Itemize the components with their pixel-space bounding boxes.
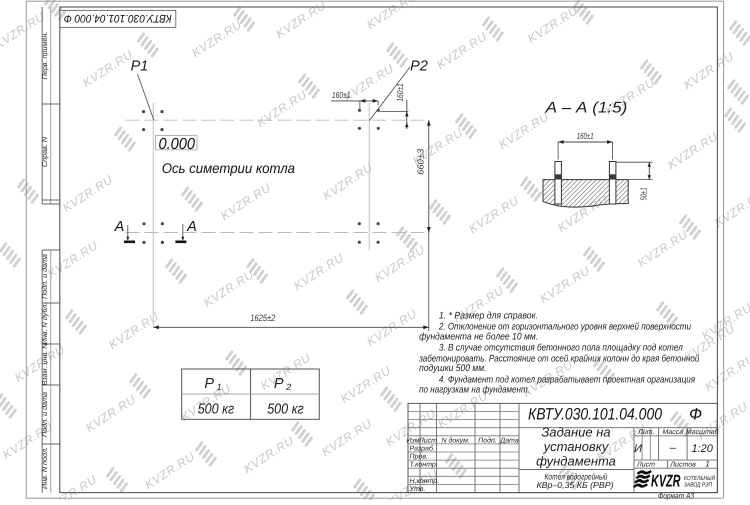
svg-text:160±1: 160±1 <box>332 90 351 100</box>
svg-text:P 1: P 1 <box>204 376 221 392</box>
svg-text:KVZR.RU: KVZR.RU <box>254 87 309 130</box>
svg-text:КВТУ.030.101.04.000 Ф: КВТУ.030.101.04.000 Ф <box>64 12 172 24</box>
svg-text:КОТЕЛЬНЫЙ: КОТЕЛЬНЫЙ <box>684 474 716 482</box>
svg-text:KVZR.RU: KVZR.RU <box>434 29 489 72</box>
svg-text:Дата: Дата <box>499 437 519 444</box>
svg-text:Подп. и дата: Подп. и дата <box>40 254 49 299</box>
svg-text:KVZR.RU: KVZR.RU <box>496 109 551 152</box>
svg-text:KVZR.RU: KVZR.RU <box>60 172 115 215</box>
svg-text:KVZR.RU: KVZR.RU <box>241 433 296 476</box>
svg-text:KVZR.RU: KVZR.RU <box>44 472 99 500</box>
svg-text:Т.контр.: Т.контр. <box>410 462 438 469</box>
svg-text:установку: установку <box>543 439 610 454</box>
svg-text:KVZR.RU: KVZR.RU <box>45 238 100 281</box>
svg-text:Лист: Лист <box>418 437 437 444</box>
svg-text:Подп.: Подп. <box>478 436 497 444</box>
svg-text:Ф: Ф <box>689 405 702 423</box>
svg-text:КВр–0,35 КБ (РВР): КВр–0,35 КБ (РВР) <box>537 480 614 490</box>
svg-text:KVZR: KVZR <box>651 471 681 490</box>
svg-text:Взам. инв. N: Взам. инв. N <box>40 343 49 386</box>
svg-text:фундамента: фундамента <box>536 454 616 469</box>
svg-text:KVZR.RU: KVZR.RU <box>189 17 244 60</box>
svg-text:КВТУ.030.101.04.000: КВТУ.030.101.04.000 <box>528 405 663 423</box>
svg-text:KVZR.RU: KVZR.RU <box>537 263 592 306</box>
svg-text:подушки 500 мм.: подушки 500 мм. <box>419 363 486 374</box>
svg-text:А: А <box>186 219 197 235</box>
svg-text:KVZR.RU: KVZR.RU <box>218 180 273 223</box>
svg-text:KVZR.RU: KVZR.RU <box>635 227 690 270</box>
svg-text:P1: P1 <box>131 59 149 75</box>
svg-text:Утв.: Утв. <box>409 486 426 493</box>
svg-text:KVZR.RU: KVZR.RU <box>372 242 427 285</box>
svg-text:500 кг: 500 кг <box>198 402 235 418</box>
svg-text:KVZR.RU: KVZR.RU <box>466 193 521 236</box>
svg-text:160±1: 160±1 <box>577 131 594 141</box>
svg-text:Масса: Масса <box>662 429 683 436</box>
svg-text:KVZR.RU: KVZR.RU <box>525 3 580 46</box>
svg-text:KVZR.RU: KVZR.RU <box>319 416 374 459</box>
svg-text:ЗАВОД РЭП: ЗАВОД РЭП <box>684 482 713 489</box>
svg-text:KVZR.RU: KVZR.RU <box>142 449 197 492</box>
svg-text:по нагрузкам на фундамент.: по нагрузкам на фундамент. <box>419 384 530 395</box>
svg-text:500 кг: 500 кг <box>267 402 304 418</box>
svg-text:P 2: P 2 <box>274 376 291 392</box>
svg-text:KVZR.RU: KVZR.RU <box>702 351 750 394</box>
svg-text:1625±2: 1625±2 <box>250 313 275 323</box>
svg-text:P2: P2 <box>410 59 428 75</box>
svg-text:N докум.: N докум. <box>442 436 470 444</box>
svg-text:Инв. N подл.: Инв. N подл. <box>40 447 49 489</box>
svg-text:KVZR.RU: KVZR.RU <box>201 267 256 310</box>
svg-text:KVZR.RU: KVZR.RU <box>681 49 736 92</box>
svg-text:Разраб.: Разраб. <box>410 445 435 453</box>
svg-text:1: 1 <box>705 460 709 469</box>
svg-text:3. В случае отсутствия бетонн: 3. В случае отсутствия бетонного пола пл… <box>439 343 683 354</box>
svg-text:Инв. N дубл.: Инв. N дубл. <box>40 303 49 345</box>
svg-text:Формат А3: Формат А3 <box>658 492 694 500</box>
svg-text:Лист: Лист <box>636 462 655 469</box>
svg-text:KVZR.RU: KVZR.RU <box>665 129 720 172</box>
svg-text:KVZR.RU: KVZR.RU <box>291 250 346 293</box>
svg-text:Лит.: Лит. <box>637 429 654 436</box>
svg-text:Ось симетрии котла: Ось симетрии котла <box>162 160 295 176</box>
svg-text:0.000: 0.000 <box>159 136 196 153</box>
svg-text:1:20: 1:20 <box>691 443 713 455</box>
svg-text:160±1: 160±1 <box>395 83 405 101</box>
svg-text:А – А (1:5): А – А (1:5) <box>544 99 627 116</box>
svg-text:Масштаб: Масштаб <box>686 428 720 436</box>
svg-text:–: – <box>669 442 677 454</box>
svg-text:Пров.: Пров. <box>410 454 429 461</box>
svg-text:660±3: 660±3 <box>415 149 425 175</box>
svg-text:А: А <box>114 219 125 235</box>
svg-text:50±1: 50±1 <box>638 187 648 200</box>
svg-text:KVZR.RU: KVZR.RU <box>83 392 138 435</box>
svg-text:KVZR.RU: KVZR.RU <box>273 0 328 41</box>
svg-text:Перв. примен.: Перв. примен. <box>40 32 49 80</box>
svg-text:Подп. и дата: Подп. и дата <box>40 392 49 437</box>
svg-text:Листов: Листов <box>669 462 696 469</box>
svg-text:KVZR.RU: KVZR.RU <box>320 160 375 203</box>
svg-text:фундамента не более 10 мм.: фундамента не более 10 мм. <box>419 331 538 342</box>
svg-text:Задание на: Задание на <box>541 425 610 440</box>
svg-text:KVZR.RU: KVZR.RU <box>80 47 135 90</box>
svg-text:KVZR.RU: KVZR.RU <box>364 0 419 32</box>
svg-text:Н.контр.: Н.контр. <box>410 478 440 485</box>
svg-text:Справ. N: Справ. N <box>40 136 49 167</box>
svg-text:1. * Размер для справок.: 1. * Размер для справок. <box>439 310 538 321</box>
svg-text:И: И <box>634 443 642 455</box>
